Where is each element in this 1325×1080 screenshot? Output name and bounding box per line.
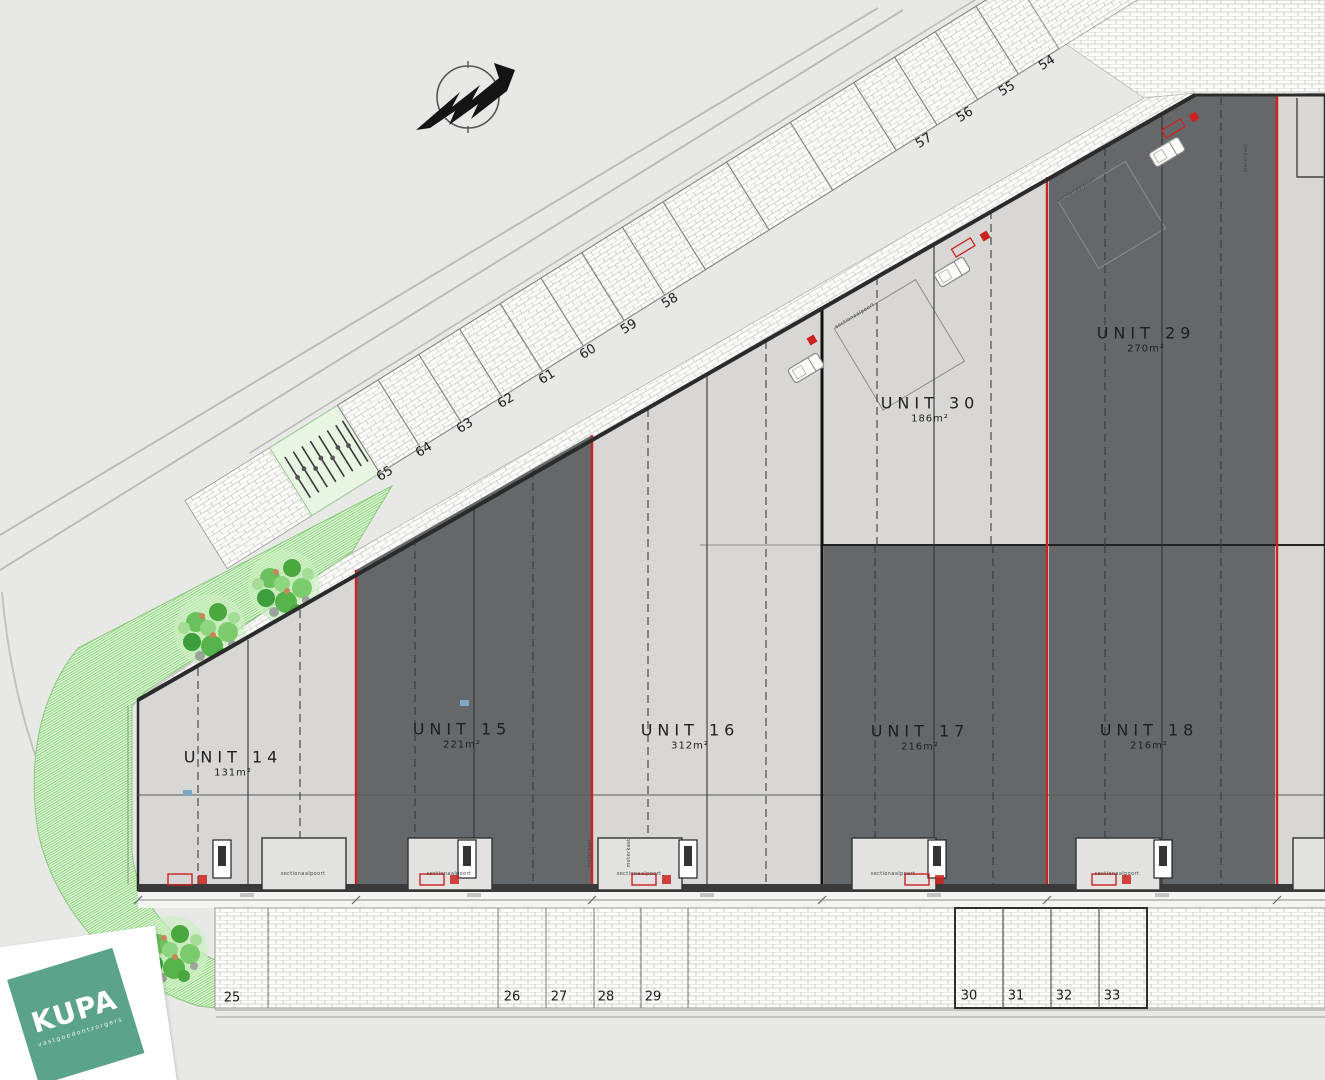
unit-30-label: UNIT 30 186m² (881, 394, 980, 425)
sectional-door-label: sectionaalpoort (871, 871, 916, 877)
unit-14-label: UNIT 14 131m² (184, 748, 283, 779)
parking-space-26: 26 (504, 990, 521, 1005)
parking-space-27: 27 (551, 990, 568, 1005)
meter-cabinet-label: meterkast (1243, 143, 1249, 172)
site-plan: UNIT 14 131m² UNIT 15 221m² UNIT 16 312m… (0, 0, 1325, 1080)
meter-cabinet-label: meterkast (626, 838, 632, 867)
meter-cabinet-label: meterkast (587, 838, 593, 867)
sectional-door-label: sectionaalpoort (281, 871, 326, 877)
parking-space-33: 33 (1104, 989, 1121, 1004)
sectional-door-label: sectionaalpoort (427, 871, 472, 877)
unit-17-area (824, 545, 1046, 888)
unit-16-label: UNIT 16 312m² (641, 721, 740, 752)
walkway-bottom (215, 908, 1325, 1008)
unit-15-label: UNIT 15 221m² (413, 720, 512, 751)
unit-17-label: UNIT 17 216m² (871, 722, 970, 753)
parking-space-32: 32 (1056, 989, 1073, 1004)
unit-29-label: UNIT 29 270m² (1097, 324, 1196, 355)
sectional-door-label: sectionaalpoort (1095, 871, 1140, 877)
kupa-logo: KUPA vastgoedontzorgers (7, 948, 144, 1080)
unit-18-label: UNIT 18 216m² (1100, 721, 1199, 752)
parking-space-30: 30 (961, 989, 978, 1004)
parking-space-25: 25 (224, 991, 241, 1006)
kupa-logo-card: KUPA vastgoedontzorgers (0, 926, 179, 1080)
sectional-door-label: sectionaalpoort (617, 871, 662, 877)
site-plan-drawing (0, 0, 1325, 1080)
parking-space-29: 29 (645, 990, 662, 1005)
parking-space-31: 31 (1008, 989, 1025, 1004)
parking-space-28: 28 (598, 990, 615, 1005)
